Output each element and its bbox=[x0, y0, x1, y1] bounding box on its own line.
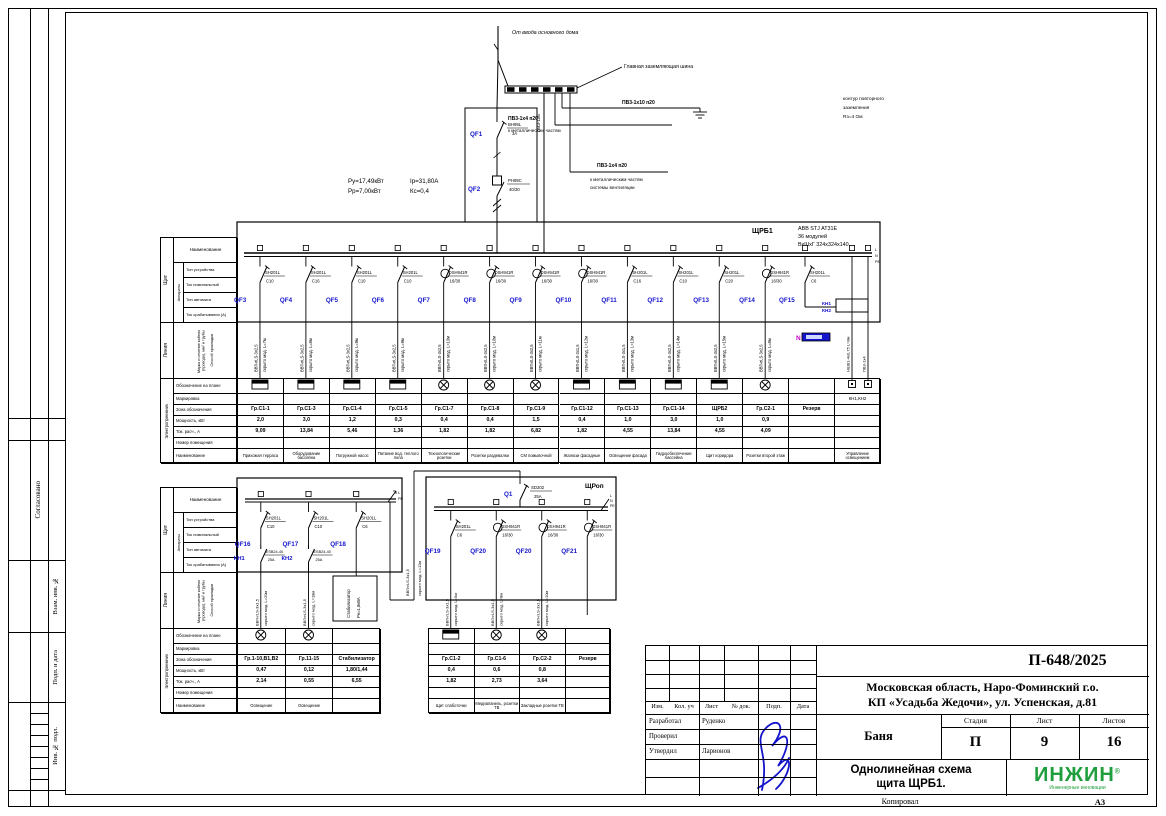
logo-text: ИНЖИН® bbox=[1034, 765, 1121, 785]
svg-text:C10: C10 bbox=[266, 279, 274, 284]
svg-text:DSH941R: DSH941R bbox=[592, 524, 611, 529]
svg-text:скрыто мод. L=10м: скрыто мод. L=10м bbox=[544, 591, 549, 626]
svg-text:ВН99L: ВН99L bbox=[508, 122, 522, 127]
svg-text:QF20: QF20 bbox=[470, 548, 486, 555]
svg-text:НШВ1-4х0,75 L=8м: НШВ1-4х0,75 L=8м bbox=[846, 336, 851, 372]
svg-text:3А: 3А bbox=[512, 131, 517, 136]
svg-text:QF1: QF1 bbox=[470, 131, 483, 138]
svg-text:QF10: QF10 bbox=[555, 297, 571, 304]
svg-text:DSH941R: DSH941R bbox=[547, 524, 566, 529]
svg-text:SH201L: SH201L bbox=[357, 270, 373, 275]
svg-text:Рн=1,8кВА: Рн=1,8кВА bbox=[356, 597, 361, 618]
project-address: Московская область, Наро-Фоминский г.о. … bbox=[816, 676, 1149, 714]
svg-text:25А: 25А bbox=[534, 494, 542, 499]
svg-text:ВВГнгLS-3х2,5: ВВГнгLS-3х2,5 bbox=[253, 344, 258, 372]
role-developed-name: Руденко bbox=[700, 714, 758, 729]
svg-text:L: L bbox=[875, 248, 877, 252]
svg-text:скрыто мод. L=14м: скрыто мод. L=14м bbox=[675, 336, 680, 372]
svg-text:ВВГнгLS-3х2,5: ВВГнгLS-3х2,5 bbox=[437, 344, 442, 372]
svg-text:Стабилизатор: Стабилизатор bbox=[346, 589, 351, 618]
svg-text:Рр=7,00кВт: Рр=7,00кВт bbox=[348, 188, 381, 195]
svg-text:Главная заземляющая шина: Главная заземляющая шина bbox=[624, 64, 693, 70]
svg-text:SH201L: SH201L bbox=[403, 270, 419, 275]
svg-text:C20: C20 bbox=[725, 279, 733, 284]
svg-text:ВВГнгLS-3х1,5: ВВГнгLS-3х1,5 bbox=[535, 598, 540, 626]
svg-text:16/30: 16/30 bbox=[542, 279, 553, 284]
address-line2: КП «Усадьба Жедочи», ул. Успенская, д.81 bbox=[868, 695, 1097, 710]
svg-text:QF9: QF9 bbox=[510, 297, 523, 304]
svg-text:QF4: QF4 bbox=[280, 297, 293, 304]
svg-text:QF7: QF7 bbox=[418, 297, 431, 304]
svg-text:скрыто мод. L=7м: скрыто мод. L=7м bbox=[262, 338, 267, 372]
svg-text:системы вентиляции: системы вентиляции bbox=[590, 185, 635, 190]
svg-text:QF17: QF17 bbox=[283, 541, 299, 548]
role-developed: Разработал bbox=[647, 714, 699, 729]
title-block: Изм. Кол. уч Лист № док. Подп. Дата Разр… bbox=[645, 645, 1148, 795]
svg-text:скрыто мод. L=8м: скрыто мод. L=8м bbox=[767, 338, 772, 372]
svg-text:ВВГнгLS-3х2,5: ВВГнгLS-3х2,5 bbox=[299, 344, 304, 372]
svg-text:DSH941R: DSH941R bbox=[501, 524, 520, 529]
svg-text:ВВГнгLS-3х2,5: ВВГнгLS-3х2,5 bbox=[713, 344, 718, 372]
svg-text:PE: PE bbox=[875, 260, 881, 264]
svg-text:16/30: 16/30 bbox=[496, 279, 507, 284]
svg-text:16/30: 16/30 bbox=[502, 533, 513, 538]
svg-text:ПВ3-1х4: ПВ3-1х4 bbox=[862, 356, 867, 372]
svg-text:ВВГнгLS-3х1,5: ВВГнгLS-3х1,5 bbox=[405, 568, 410, 596]
role-approved-name: Ларионов bbox=[700, 744, 758, 759]
rev-col-data: Дата bbox=[790, 701, 816, 714]
svg-text:ABB STJ AT31E: ABB STJ AT31E bbox=[798, 226, 838, 232]
svg-text:Q1: Q1 bbox=[504, 491, 513, 498]
svg-text:QF16: QF16 bbox=[235, 541, 251, 548]
svg-text:Rз=4 Ом: Rз=4 Ом bbox=[843, 114, 863, 120]
svg-text:скрыто мод. L=20м: скрыто мод. L=20м bbox=[263, 591, 268, 626]
sheet-value: 9 bbox=[1010, 727, 1079, 759]
svg-text:скрыто мод. L=8м: скрыто мод. L=8м bbox=[308, 338, 313, 372]
svg-text:Кс=0,4: Кс=0,4 bbox=[410, 188, 429, 195]
svg-text:КН1: КН1 bbox=[822, 301, 831, 307]
svg-text:скрыто мод. L=15м: скрыто мод. L=15м bbox=[721, 336, 726, 372]
svg-text:DSH941R: DSH941R bbox=[586, 270, 605, 275]
svg-text:C10: C10 bbox=[679, 279, 687, 284]
svg-text:ВВГнгLS-3х2,5: ВВГнгLS-3х2,5 bbox=[529, 344, 534, 372]
svg-text:SH201L: SH201L bbox=[810, 270, 826, 275]
svg-text:SH201L: SH201L bbox=[456, 524, 472, 529]
svg-text:16/30: 16/30 bbox=[548, 533, 559, 538]
svg-text:SH201L: SH201L bbox=[724, 270, 740, 275]
svg-text:C16: C16 bbox=[312, 279, 320, 284]
svg-text:L: L bbox=[398, 491, 400, 495]
sheet-label: Лист bbox=[1010, 714, 1079, 727]
svg-text:N: N bbox=[796, 335, 801, 342]
svg-text:ВВГнгLS-3х2,5: ВВГнгLS-3х2,5 bbox=[667, 344, 672, 372]
role-checked: Проверил bbox=[647, 729, 699, 744]
svg-text:скрыто мод. L=11м: скрыто мод. L=11м bbox=[538, 336, 543, 372]
svg-text:QF19: QF19 bbox=[425, 548, 441, 555]
svg-text:PE: PE bbox=[610, 504, 615, 508]
svg-text:40/30: 40/30 bbox=[509, 187, 520, 192]
svg-text:SH201L: SH201L bbox=[678, 270, 694, 275]
svg-text:скрыто мод. L=10м: скрыто мод. L=10м bbox=[492, 336, 497, 372]
svg-text:ЩРоп: ЩРоп bbox=[585, 483, 604, 490]
svg-text:к металлическим частям: к металлическим частям bbox=[590, 177, 643, 182]
stage-value: П bbox=[941, 727, 1010, 759]
copied-label: Копировал bbox=[840, 797, 960, 806]
svg-text:ВВГнгLS-3х2,5: ВВГнгLS-3х2,5 bbox=[391, 344, 396, 372]
svg-text:QF8: QF8 bbox=[464, 297, 477, 304]
svg-text:SH201L: SH201L bbox=[361, 516, 377, 521]
svg-text:C10: C10 bbox=[267, 524, 275, 529]
svg-text:заземления: заземления bbox=[843, 106, 870, 111]
rev-col-koluch: Кол. уч bbox=[669, 701, 699, 714]
rev-col-list: Лист bbox=[699, 701, 724, 714]
svg-text:ВВГнгLS-3х1,5: ВВГнгLS-3х1,5 bbox=[254, 598, 259, 626]
svg-text:QF13: QF13 bbox=[693, 297, 709, 304]
svg-text:SH201L: SH201L bbox=[266, 516, 282, 521]
svg-text:25А: 25А bbox=[316, 558, 323, 562]
svg-text:QF2: QF2 bbox=[468, 186, 481, 193]
svg-text:КН1: КН1 bbox=[234, 556, 246, 562]
stage-label: Стадия bbox=[941, 714, 1010, 727]
svg-text:QF11: QF11 bbox=[601, 297, 617, 304]
svg-text:РН99С: РН99С bbox=[508, 178, 522, 183]
svg-text:QF5: QF5 bbox=[326, 297, 339, 304]
svg-text:ВВГнгLS-3х1,5: ВВГнгLS-3х1,5 bbox=[444, 598, 449, 626]
svg-text:DSH941R: DSH941R bbox=[541, 270, 560, 275]
svg-text:16/30: 16/30 bbox=[771, 279, 782, 284]
svg-text:36 модулей: 36 модулей bbox=[798, 233, 827, 240]
svg-text:Ру=17,49кВт: Ру=17,49кВт bbox=[348, 178, 384, 185]
format-label: А3 bbox=[1080, 797, 1120, 807]
svg-text:C6: C6 bbox=[811, 279, 817, 284]
sheets-value: 16 bbox=[1079, 727, 1149, 759]
svg-text:скрыто мод. L=10м: скрыто мод. L=10м bbox=[446, 336, 451, 372]
svg-text:ВВГнгLS-3х2,5: ВВГнгLS-3х2,5 bbox=[759, 344, 764, 372]
svg-text:C10: C10 bbox=[315, 524, 323, 529]
svg-text:QF15: QF15 bbox=[779, 297, 795, 304]
svg-text:ВВГнгLS-3х2,5: ВВГнгLS-3х2,5 bbox=[483, 344, 488, 372]
sheet-title-line1: Однолинейная схема bbox=[850, 764, 971, 778]
svg-text:ВВГнгLS-3х2,5: ВВГнгLS-3х2,5 bbox=[345, 344, 350, 372]
svg-text:SD202: SD202 bbox=[531, 485, 545, 490]
svg-text:скрыто мод. L=18м: скрыто мод. L=18м bbox=[311, 591, 316, 626]
svg-text:QF20: QF20 bbox=[516, 548, 532, 555]
address-line1: Московская область, Наро-Фоминский г.о. bbox=[866, 680, 1098, 695]
rev-col-podp: Подп. bbox=[758, 701, 790, 714]
svg-text:16/30: 16/30 bbox=[450, 279, 461, 284]
svg-text:ESB24-40: ESB24-40 bbox=[266, 550, 283, 554]
sheet-title-line2: щита ЩРБ1. bbox=[876, 778, 945, 792]
svg-text:QF14: QF14 bbox=[739, 297, 755, 304]
svg-text:N: N bbox=[875, 254, 878, 258]
svg-text:скрыто мод. L=13м: скрыто мод. L=13м bbox=[629, 336, 634, 372]
svg-text:QF12: QF12 bbox=[647, 297, 663, 304]
rev-col-ndok: № док. bbox=[724, 701, 758, 714]
svg-text:скрыто мод. L=9м: скрыто мод. L=9м bbox=[354, 338, 359, 372]
svg-text:DSH941R: DSH941R bbox=[495, 270, 514, 275]
svg-text:C6: C6 bbox=[362, 524, 368, 529]
svg-text:SH201L: SH201L bbox=[314, 516, 330, 521]
role-approved: Утвердил bbox=[647, 744, 699, 759]
company-logo: ИНЖИН® Инженерные инновации bbox=[1006, 759, 1149, 796]
svg-text:ВВГнгLS-3х1,5: ВВГнгLS-3х1,5 bbox=[575, 344, 580, 372]
svg-text:ESB24-40: ESB24-40 bbox=[314, 550, 331, 554]
svg-text:QF18: QF18 bbox=[330, 541, 346, 548]
svg-text:SH201L: SH201L bbox=[311, 270, 327, 275]
svg-text:От ввода основного дома: От ввода основного дома bbox=[512, 30, 578, 36]
svg-text:Iр=31,80А: Iр=31,80А bbox=[410, 178, 439, 185]
svg-text:скрыто мод. L=8м: скрыто мод. L=8м bbox=[498, 593, 503, 626]
svg-text:скрыто мод. L=12м: скрыто мод. L=12м bbox=[417, 561, 422, 596]
svg-text:C16: C16 bbox=[633, 279, 641, 284]
sheets-label: Листов bbox=[1079, 714, 1149, 727]
svg-text:ПВ3-1х4 п20: ПВ3-1х4 п20 bbox=[597, 163, 627, 169]
svg-text:C10: C10 bbox=[404, 279, 412, 284]
svg-text:ВВГнгLS-3х1,5: ВВГнгLS-3х1,5 bbox=[302, 598, 307, 626]
rev-col-izm: Изм. bbox=[646, 701, 669, 714]
svg-text:контур повторного: контур повторного bbox=[843, 97, 884, 102]
svg-text:C10: C10 bbox=[358, 279, 366, 284]
drawing-sheet: Согласовано Взам. инв. № Подп. и дата Ин… bbox=[0, 0, 1166, 816]
svg-text:25А: 25А bbox=[268, 558, 275, 562]
svg-text:КН2: КН2 bbox=[282, 556, 293, 562]
svg-text:N: N bbox=[610, 499, 613, 503]
svg-text:ЩРБ1: ЩРБ1 bbox=[752, 228, 773, 235]
svg-text:16/30: 16/30 bbox=[587, 279, 598, 284]
svg-text:ВВГнгLS-3х1,5: ВВГнгLS-3х1,5 bbox=[621, 344, 626, 372]
svg-text:L: L bbox=[610, 494, 612, 498]
svg-text:C6: C6 bbox=[457, 533, 463, 538]
logo-registered-icon: ® bbox=[1115, 768, 1121, 775]
svg-text:DSH941R: DSH941R bbox=[770, 270, 789, 275]
svg-text:скрыто мод. L=9м: скрыто мод. L=9м bbox=[400, 338, 405, 372]
object-name: Баня bbox=[816, 714, 941, 759]
svg-text:PE: PE bbox=[398, 497, 404, 501]
svg-text:SH201L: SH201L bbox=[632, 270, 648, 275]
svg-text:скрыто мод. L=12м: скрыто мод. L=12м bbox=[583, 336, 588, 372]
svg-text:QF6: QF6 bbox=[372, 297, 385, 304]
svg-text:скрыто мод. L=5м: скрыто мод. L=5м bbox=[453, 593, 458, 626]
svg-text:QF21: QF21 bbox=[561, 548, 577, 555]
logo-subtitle: Инженерные инновации bbox=[1049, 785, 1105, 791]
svg-text:DSH941R: DSH941R bbox=[449, 270, 468, 275]
svg-text:QF3: QF3 bbox=[234, 297, 247, 304]
svg-text:SH201L: SH201L bbox=[265, 270, 281, 275]
doc-number: П-648/2025 bbox=[816, 646, 1149, 676]
svg-text:ПВ3-1х10 п20: ПВ3-1х10 п20 bbox=[622, 100, 655, 106]
svg-text:ВВГнгLS-3х1,5: ВВГнгLS-3х1,5 bbox=[490, 598, 495, 626]
svg-text:16/30: 16/30 bbox=[593, 533, 604, 538]
sheet-title: Однолинейная схема щита ЩРБ1. bbox=[816, 759, 1006, 796]
svg-text:КН2: КН2 bbox=[822, 308, 831, 314]
